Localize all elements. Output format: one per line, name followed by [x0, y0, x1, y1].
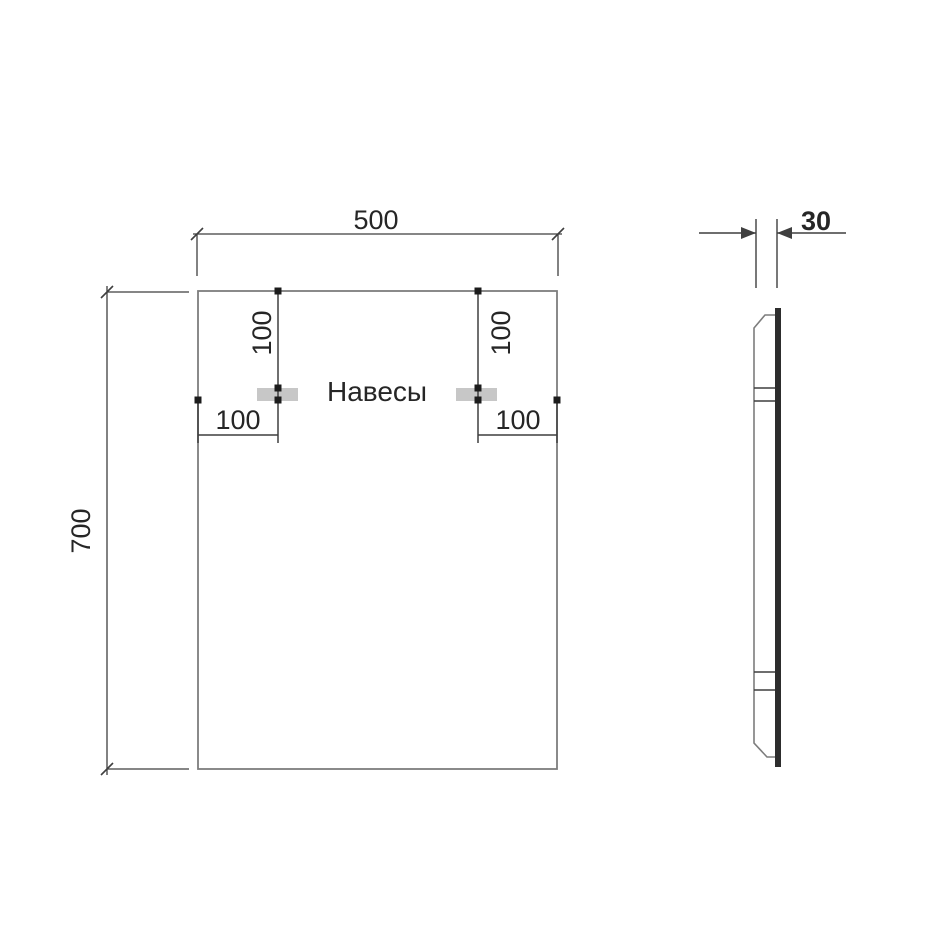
dim-hh-right-label: 100	[495, 405, 540, 435]
dim-depth-arrows	[741, 227, 792, 239]
dim-hh-left-label: 100	[215, 405, 260, 435]
mirror-dimension-drawing: 500 700 100 100	[0, 0, 940, 940]
arrow-right-icon	[741, 227, 756, 239]
marker-right-hanger-bottom	[475, 397, 482, 404]
dim-width	[191, 228, 564, 276]
drawing-canvas: 500 700 100 100	[0, 0, 940, 940]
marker-left-edge	[195, 397, 202, 404]
dim-hv-right-label: 100	[486, 310, 516, 355]
hangers-annotation: Навесы	[327, 376, 427, 407]
marker-left-hanger-top	[275, 385, 282, 392]
marker-right-edge	[554, 397, 561, 404]
side-glass-face	[775, 308, 781, 767]
dim-width-label: 500	[353, 205, 398, 235]
marker-right-hanger-top	[475, 385, 482, 392]
marker-left-hanger-bottom	[275, 397, 282, 404]
dim-hv-left-label: 100	[247, 310, 277, 355]
dim-height-label: 700	[66, 508, 96, 553]
front-view: 500 700 100 100	[66, 205, 564, 775]
dim-height	[101, 286, 189, 775]
side-bracket-lines	[754, 388, 775, 690]
marker-right-top	[475, 288, 482, 295]
front-panel-outline	[198, 291, 557, 769]
dim-depth-label: 30	[801, 206, 831, 236]
arrow-left-icon	[777, 227, 792, 239]
marker-left-top	[275, 288, 282, 295]
side-view: 30	[699, 206, 846, 767]
